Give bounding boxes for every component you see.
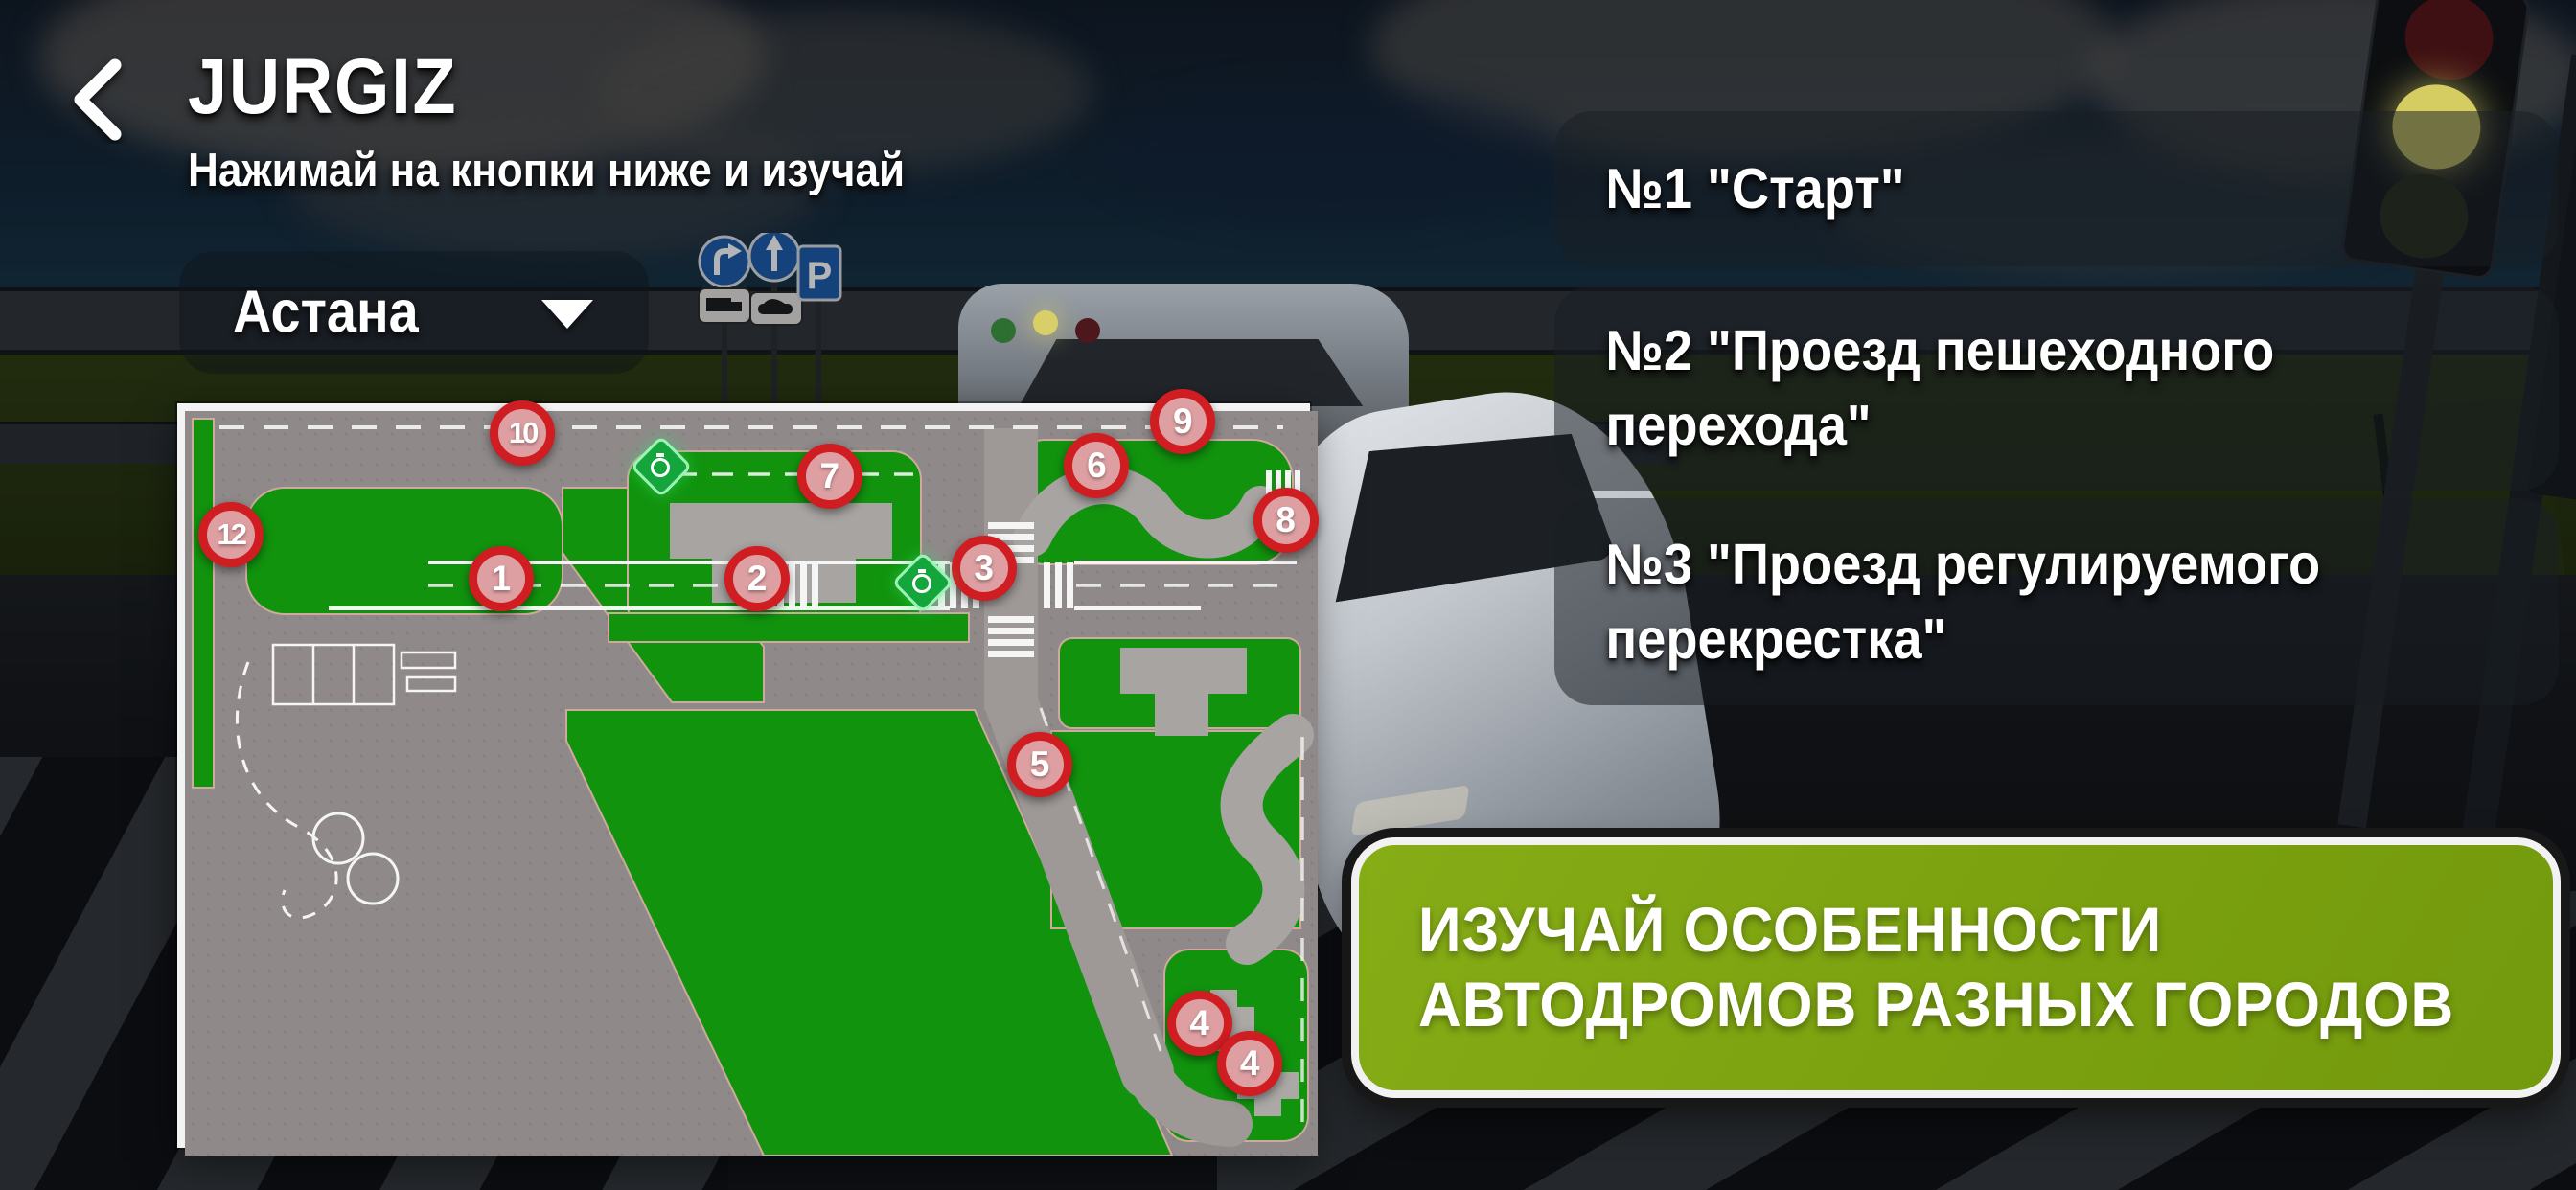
- app-screen: P: [0, 0, 2576, 1190]
- exercise-card-label: №3 "Проезд регулируемого перекрестка": [1554, 508, 2401, 697]
- study-cities-button-label: АВТОДРОМОВ РАЗНЫХ ГОРОДОВ: [1418, 968, 2485, 1042]
- page-subtitle: Нажимай на кнопки ниже и изучай: [188, 144, 984, 197]
- map-marker-12[interactable]: 12: [198, 502, 264, 567]
- map-marker-6[interactable]: 6: [1064, 433, 1129, 498]
- map-marker-5[interactable]: 5: [1007, 732, 1072, 797]
- study-cities-button[interactable]: ИЗУЧАЙ ОСОБЕННОСТИ АВТОДРОМОВ РАЗНЫХ ГОР…: [1351, 837, 2561, 1098]
- map-marker-9[interactable]: 9: [1150, 389, 1215, 454]
- exercise-card-1[interactable]: №1 "Старт": [1554, 111, 2559, 266]
- exercise-card-3[interactable]: №3 "Проезд регулируемого перекрестка": [1554, 498, 2559, 705]
- exercise-card-2[interactable]: №2 "Проезд пешеходного перехода": [1554, 286, 2559, 491]
- map-marker-7[interactable]: 7: [797, 444, 862, 509]
- map-marker-2[interactable]: 2: [724, 546, 790, 611]
- chevron-down-icon: [541, 300, 593, 329]
- map-marker-10[interactable]: 10: [490, 400, 555, 466]
- exercise-card-label: №2 "Проезд пешеходного перехода": [1554, 294, 2401, 483]
- timer-icon: [891, 551, 954, 613]
- city-dropdown[interactable]: Астана: [179, 251, 649, 374]
- study-cities-button-label: ИЗУЧАЙ ОСОБЕННОСТИ: [1418, 893, 2485, 968]
- back-button[interactable]: [67, 56, 128, 144]
- map-marker-layer: 12344567891012: [185, 411, 1302, 1140]
- exercise-card-label: №1 "Старт": [1554, 132, 1940, 245]
- autodrome-map: 12344567891012: [177, 403, 1310, 1148]
- map-marker-8[interactable]: 8: [1253, 488, 1319, 553]
- map-marker-1[interactable]: 1: [469, 546, 534, 611]
- map-marker-3[interactable]: 3: [952, 536, 1017, 601]
- timer-icon: [630, 435, 692, 497]
- city-dropdown-value: Астана: [233, 279, 419, 347]
- chevron-left-icon: [80, 65, 115, 134]
- page-title: JURGIZ: [188, 42, 488, 132]
- map-marker-4[interactable]: 4: [1217, 1031, 1282, 1096]
